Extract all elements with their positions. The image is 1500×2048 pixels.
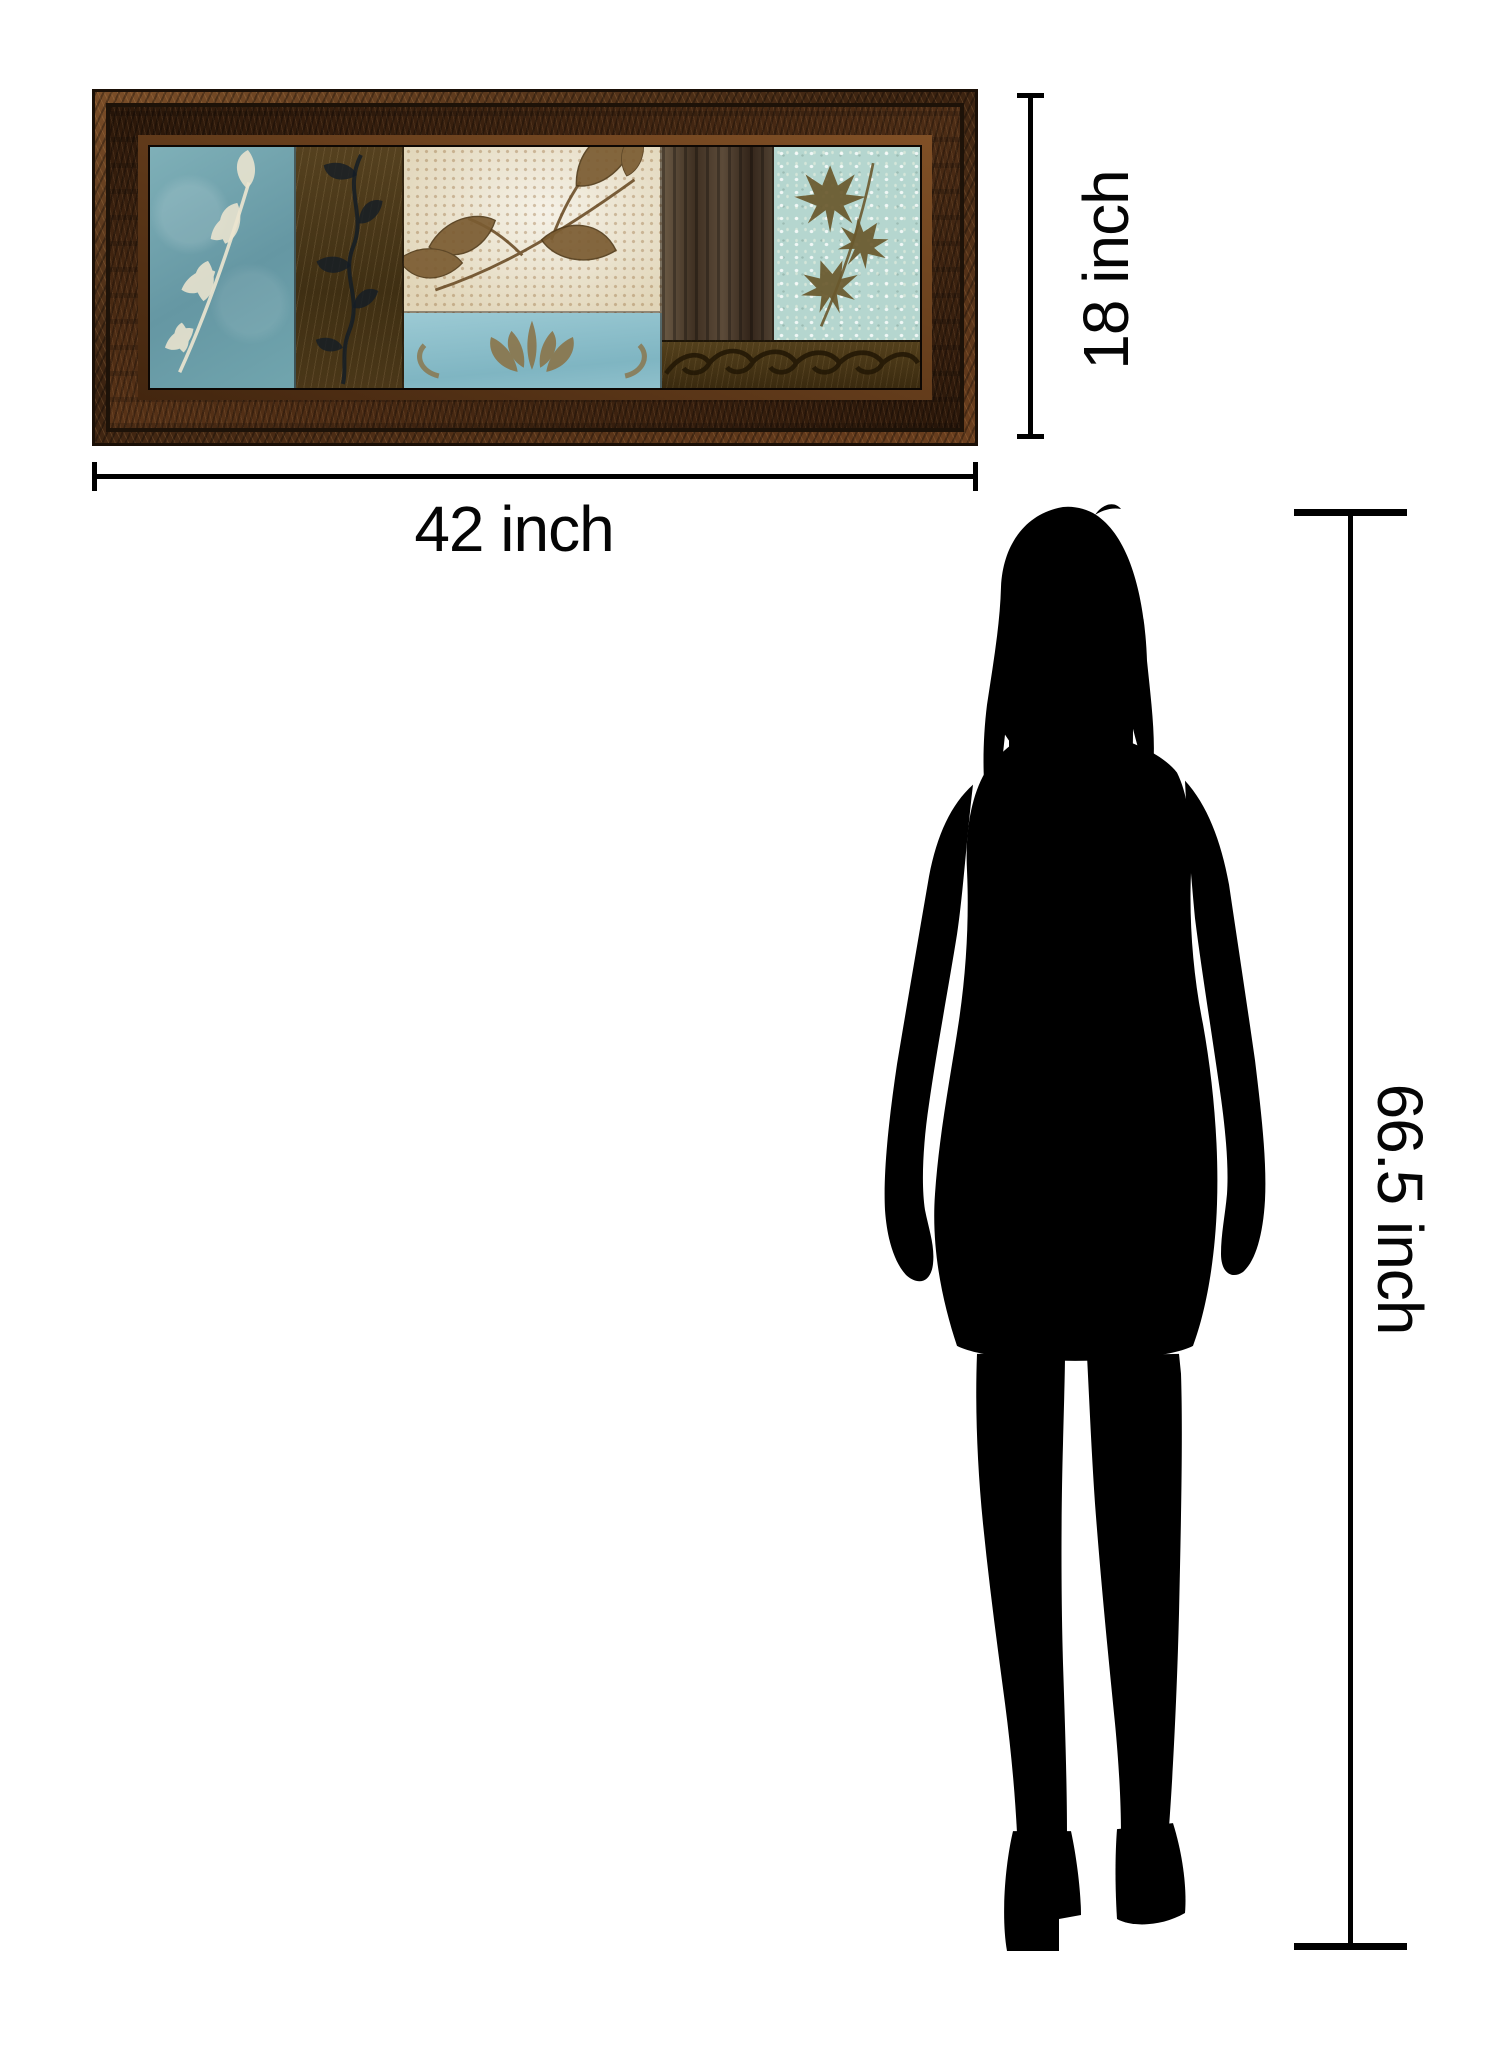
- damask-motif-graphic: [404, 313, 660, 388]
- frame-molding-main: [110, 107, 960, 428]
- brown-flourish-panel: [296, 147, 404, 388]
- artwork-canvas: [148, 145, 922, 390]
- maple-leaf-branch-graphic: [774, 147, 920, 340]
- person-height-dimension-line: [1348, 512, 1353, 1948]
- dark-flourish-graphic: [296, 147, 402, 388]
- woman-silhouette: [855, 505, 1285, 1953]
- white-leaf-branch-graphic: [150, 147, 294, 388]
- cream-leaves-panel: [404, 147, 662, 313]
- width-dimension-endcap-left: [92, 462, 97, 491]
- scroll-band-panel: [662, 340, 920, 388]
- teal-maple-panel: [774, 147, 920, 340]
- person-height-endcap-bottom: [1294, 1943, 1407, 1950]
- width-dimension-endcap-right: [973, 462, 978, 491]
- scroll-vine-graphic: [662, 342, 920, 388]
- frame-molding-outer: [95, 92, 975, 443]
- height-dimension-endcap-top: [1017, 93, 1044, 98]
- brown-leaf-branch-graphic: [404, 147, 660, 311]
- height-dimension-line: [1028, 93, 1033, 439]
- height-dimension-endcap-bottom: [1017, 434, 1044, 439]
- wood-grain-panel: [662, 147, 774, 340]
- blue-damask-panel: [404, 313, 662, 388]
- size-comparison-graphic: 42 inch 18 inch 66.5 inch: [0, 0, 1500, 2048]
- frame-groove: [106, 103, 964, 432]
- person-height-endcap-top: [1294, 509, 1407, 516]
- person-height-dimension-label: 66.5 inch: [1368, 1084, 1432, 1335]
- framed-artwork: [92, 89, 978, 446]
- height-dimension-label: 18 inch: [1074, 170, 1138, 369]
- frame-molding-inner: [138, 135, 932, 400]
- blue-leaf-panel: [150, 147, 296, 388]
- width-dimension-line: [92, 474, 978, 479]
- width-dimension-label: 42 inch: [414, 497, 613, 561]
